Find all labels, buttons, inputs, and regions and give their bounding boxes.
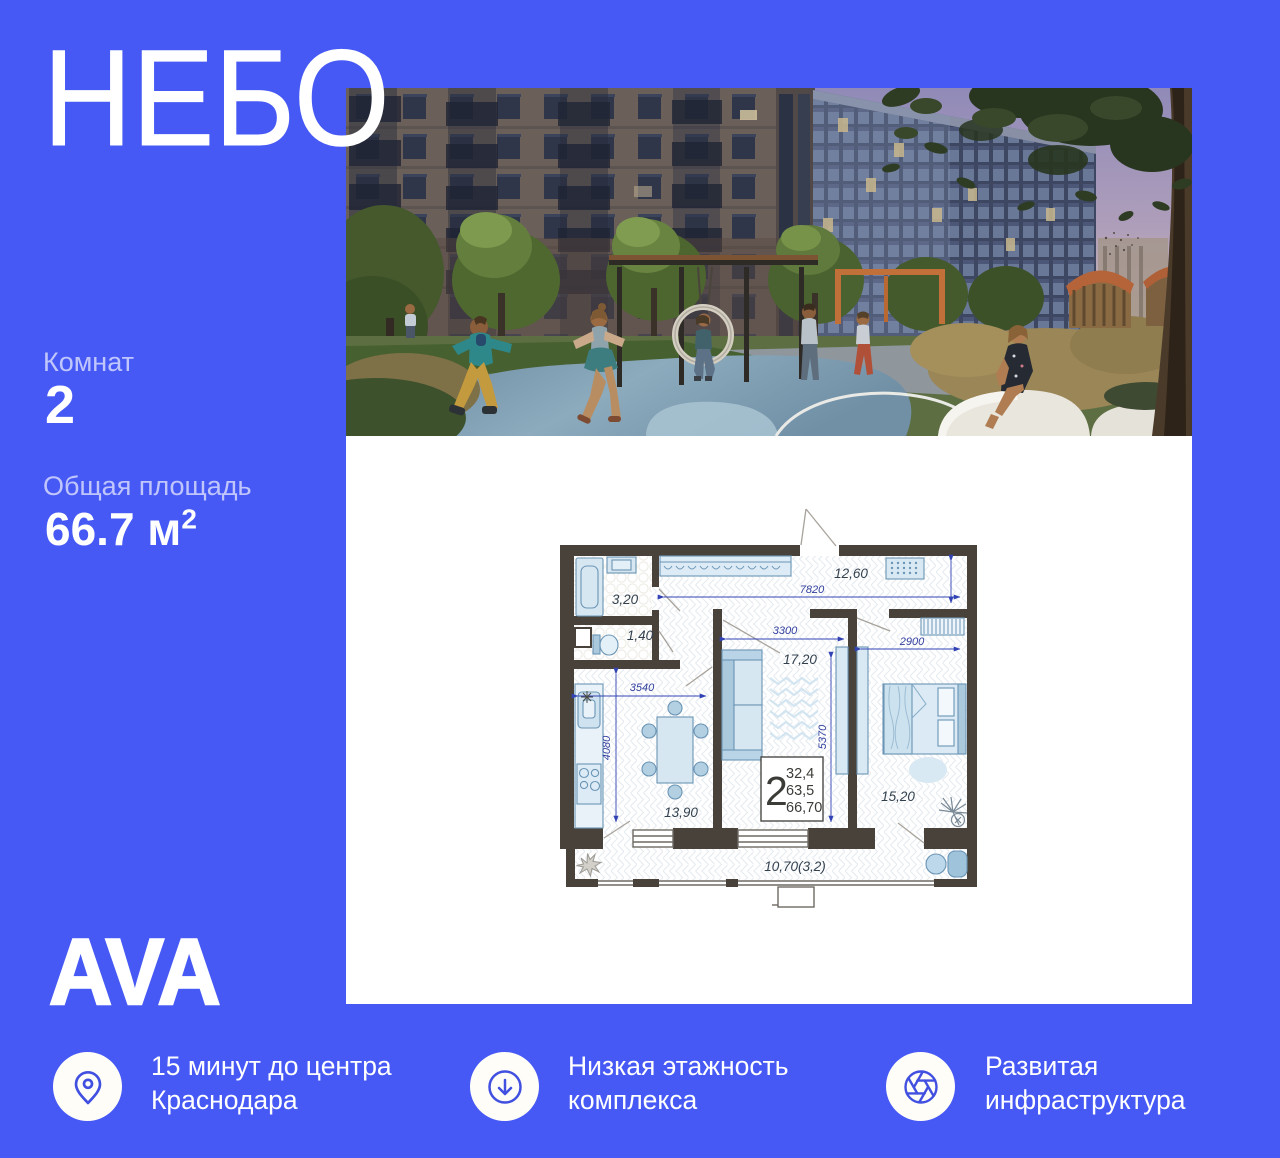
svg-text:32,4: 32,4 [786, 766, 814, 782]
svg-text:63,5: 63,5 [786, 783, 814, 799]
svg-text:10,70(3,2): 10,70(3,2) [764, 859, 826, 874]
svg-text:17,20: 17,20 [783, 652, 817, 667]
svg-text:12,60: 12,60 [834, 566, 868, 581]
svg-text:7820: 7820 [800, 584, 825, 596]
svg-text:3,20: 3,20 [612, 592, 639, 607]
svg-text:3540: 3540 [630, 682, 655, 694]
svg-text:5370: 5370 [817, 724, 829, 749]
svg-text:1,40: 1,40 [627, 628, 654, 643]
svg-text:2: 2 [765, 768, 788, 814]
svg-text:2900: 2900 [899, 636, 925, 648]
svg-text:15,20: 15,20 [881, 789, 915, 804]
svg-text:66,70: 66,70 [786, 800, 822, 816]
svg-text:3300: 3300 [773, 625, 798, 637]
svg-text:4080: 4080 [601, 735, 613, 760]
svg-text:13,90: 13,90 [664, 805, 698, 820]
